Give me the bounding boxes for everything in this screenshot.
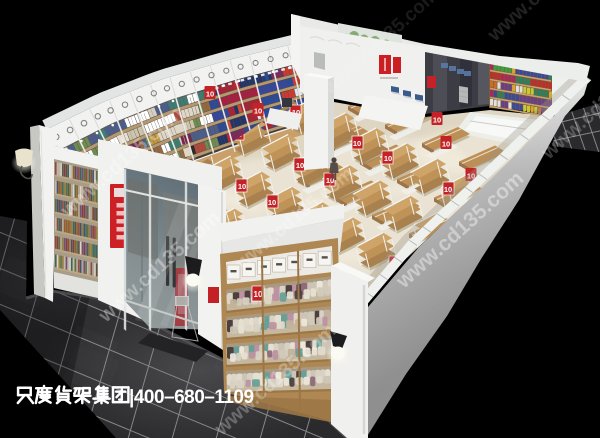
- svg-text:10: 10: [353, 139, 361, 148]
- svg-text:10: 10: [206, 90, 214, 99]
- svg-text:10: 10: [254, 107, 262, 116]
- svg-text:10: 10: [296, 161, 304, 170]
- svg-text:10: 10: [442, 140, 450, 149]
- svg-text:10: 10: [433, 116, 441, 125]
- svg-text:10: 10: [238, 182, 246, 191]
- svg-text:|400–680–1109: |400–680–1109: [129, 387, 254, 408]
- svg-text:10: 10: [268, 198, 276, 207]
- svg-text:10: 10: [384, 154, 392, 163]
